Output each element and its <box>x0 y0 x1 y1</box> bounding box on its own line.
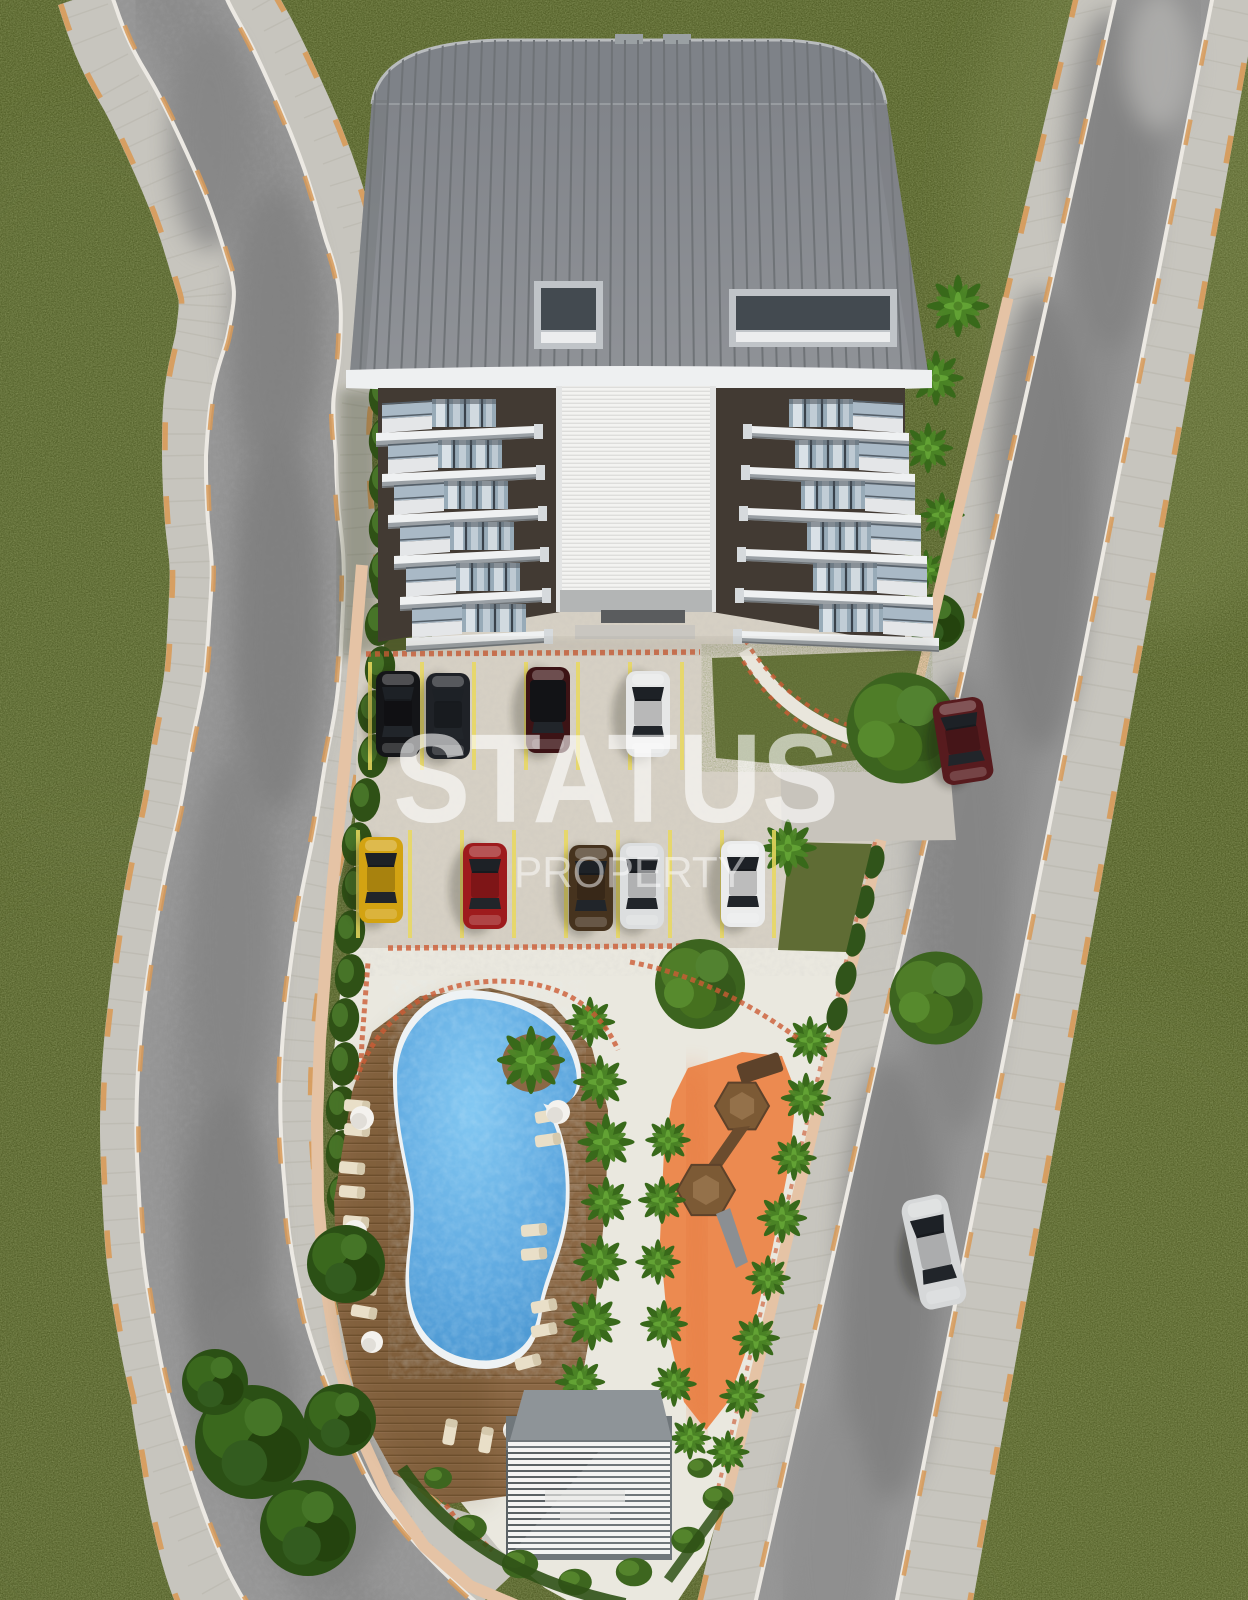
svg-text:STATUS: STATUS <box>393 708 839 849</box>
svg-text:PROPERTY: PROPERTY <box>514 848 746 897</box>
